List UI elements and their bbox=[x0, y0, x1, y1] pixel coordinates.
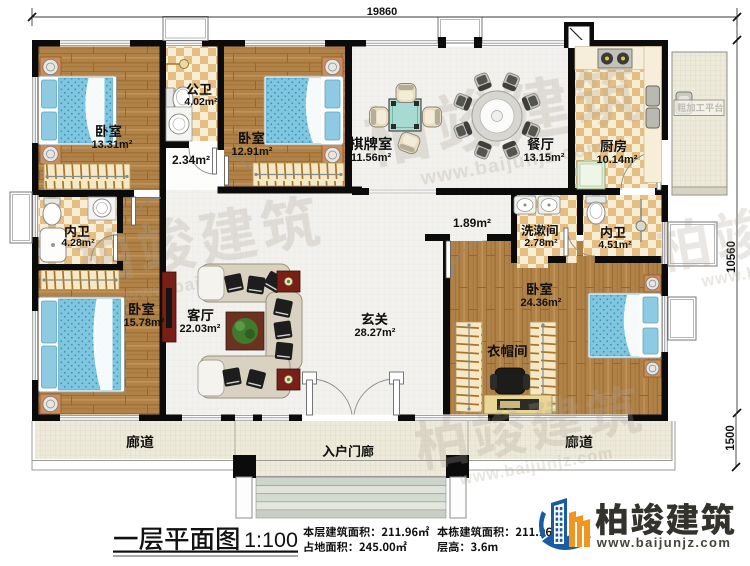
svg-text:28.27m²: 28.27m² bbox=[355, 327, 396, 339]
svg-text:4.02m²: 4.02m² bbox=[184, 96, 218, 108]
svg-text:1500: 1500 bbox=[725, 425, 737, 451]
svg-text:24.36m²: 24.36m² bbox=[521, 297, 562, 309]
svg-text:11.56m²: 11.56m² bbox=[351, 152, 392, 164]
svg-text:13.15m²: 13.15m² bbox=[524, 152, 565, 164]
svg-text:19860: 19860 bbox=[367, 6, 398, 18]
svg-text:13.31m²: 13.31m² bbox=[92, 139, 133, 151]
svg-text:10.14m²: 10.14m² bbox=[597, 154, 638, 166]
svg-text:4.51m²: 4.51m² bbox=[598, 239, 632, 251]
svg-text:4.28m²: 4.28m² bbox=[61, 237, 95, 249]
svg-text:1.89m²: 1.89m² bbox=[453, 216, 491, 230]
svg-text:2.34m²: 2.34m² bbox=[172, 153, 210, 167]
svg-text:www.baijunjz.com: www.baijunjz.com bbox=[596, 535, 732, 550]
svg-text:22.03m²: 22.03m² bbox=[180, 323, 221, 335]
svg-text:15.78m²: 15.78m² bbox=[124, 317, 165, 329]
svg-text:12.91m²: 12.91m² bbox=[232, 146, 273, 158]
svg-text:2.78m²: 2.78m² bbox=[524, 237, 558, 249]
svg-text:1:100: 1:100 bbox=[244, 528, 298, 552]
